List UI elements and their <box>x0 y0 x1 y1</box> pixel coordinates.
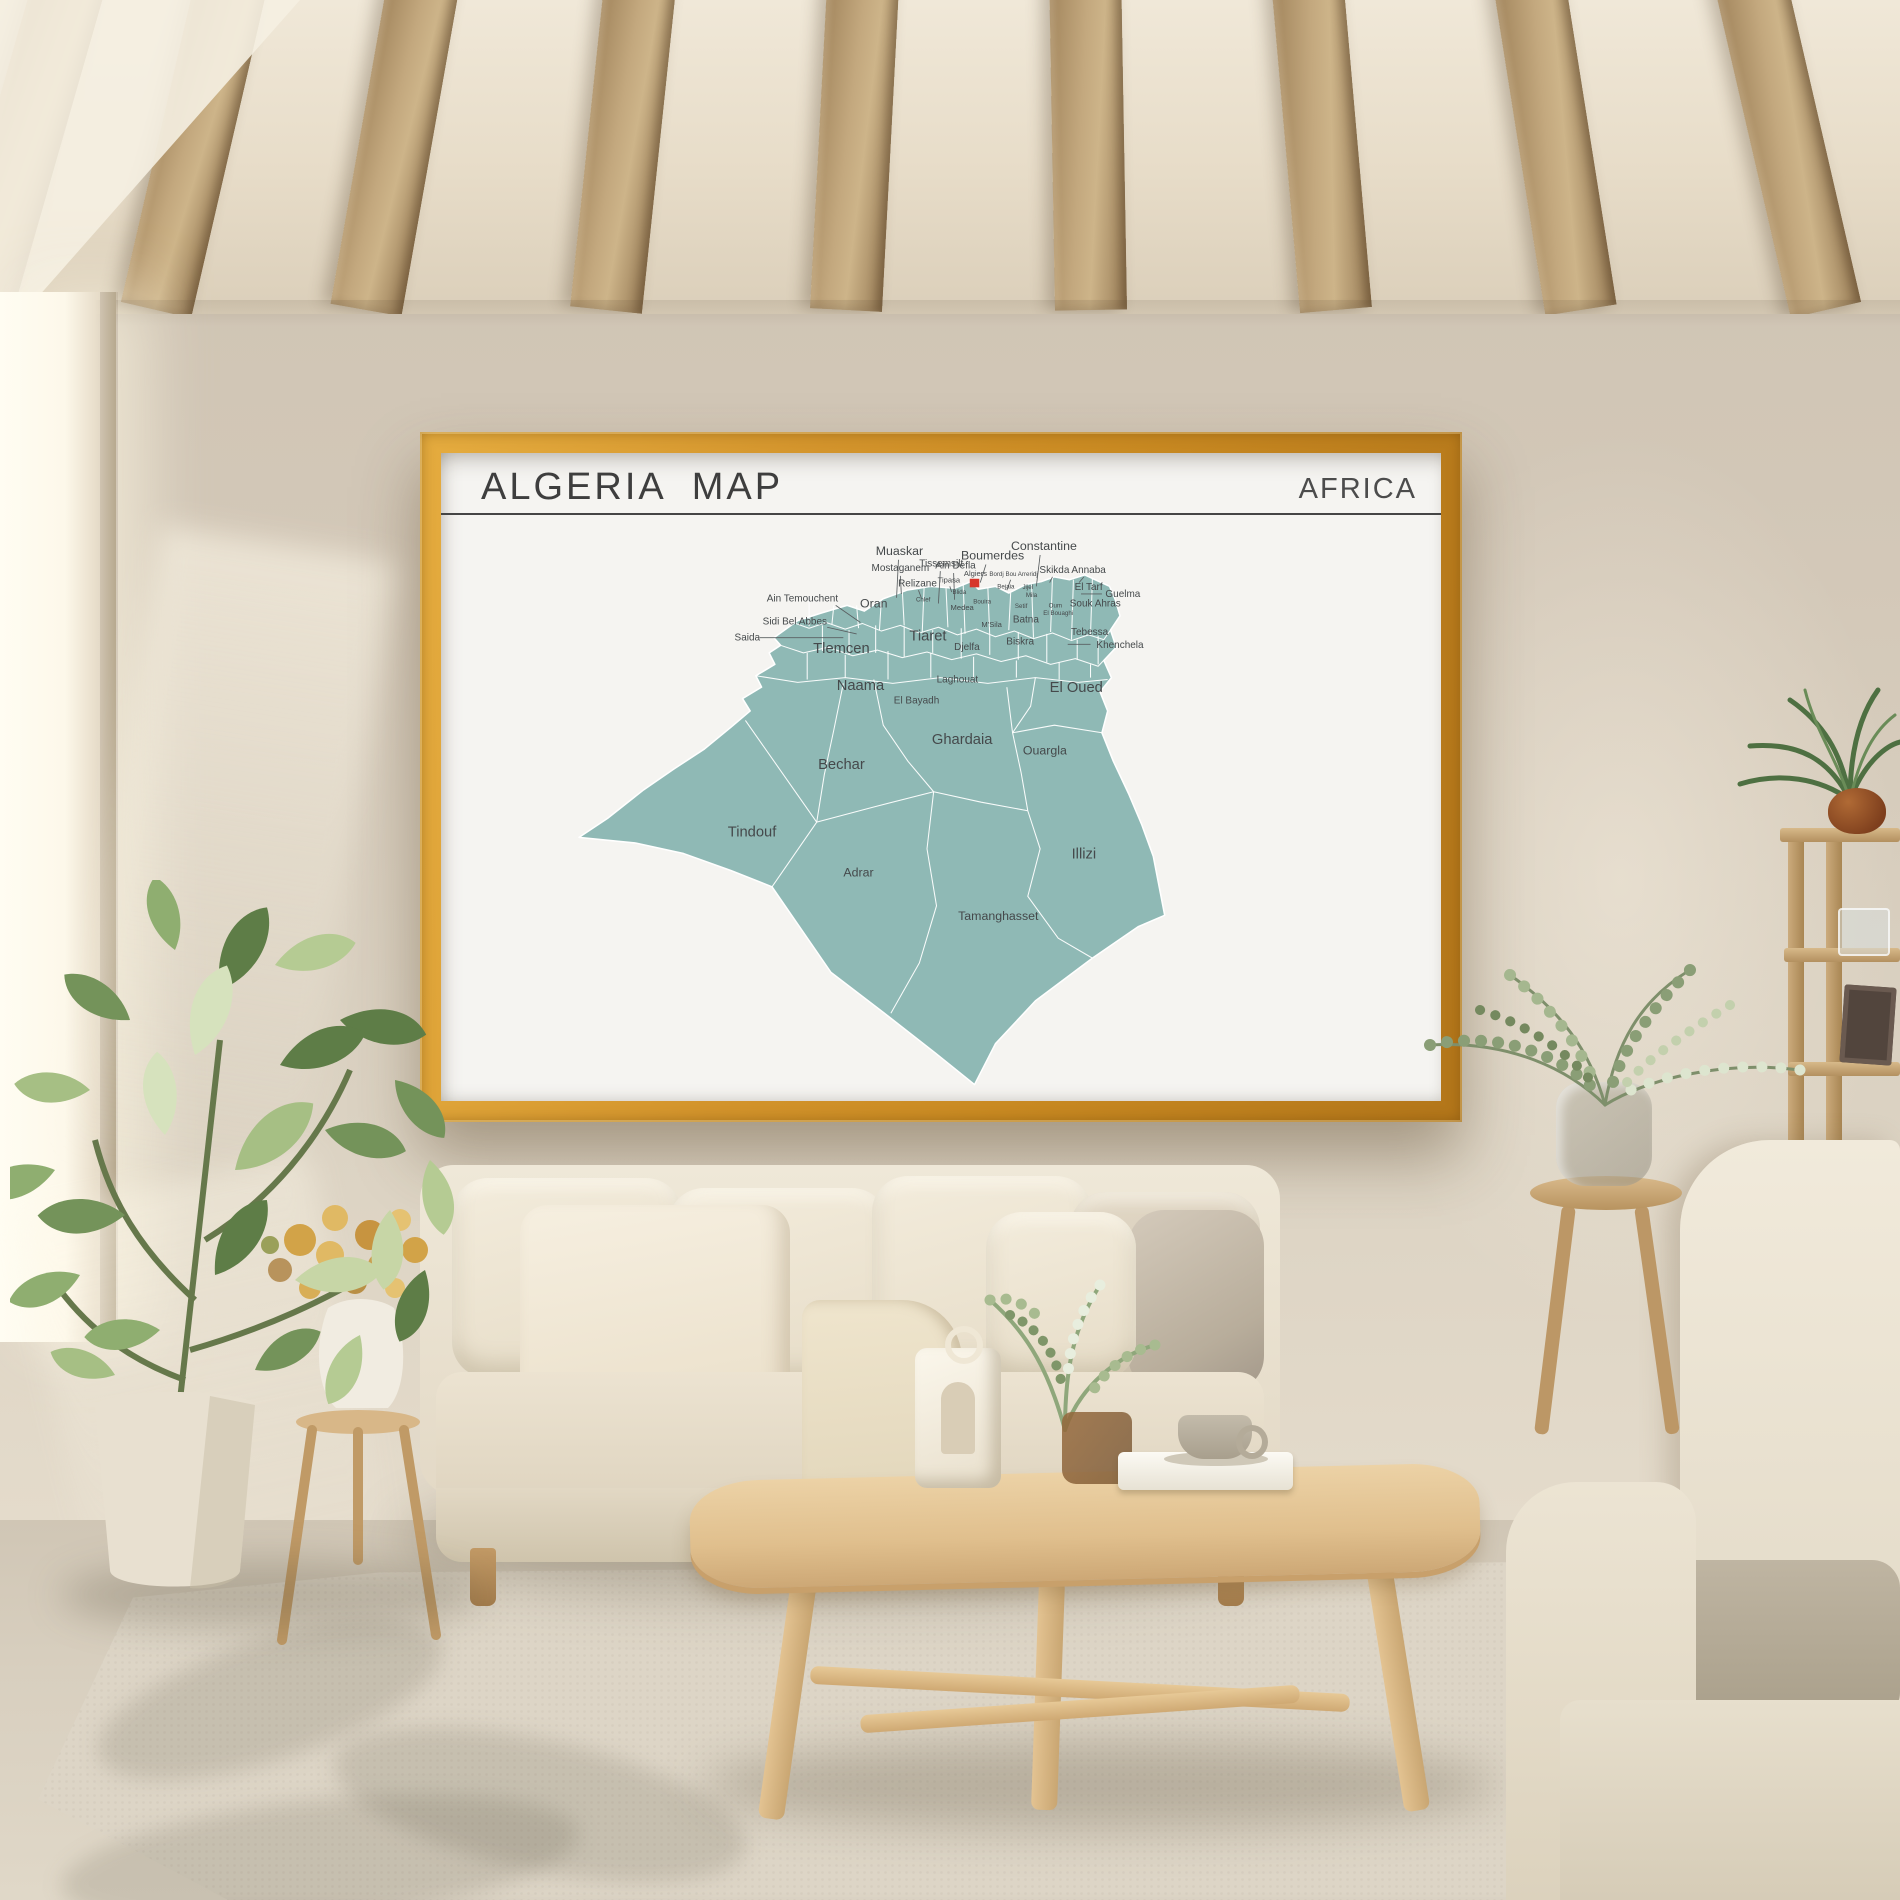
map-label: El Bayadh <box>894 695 939 706</box>
map-label: Adrar <box>843 865 873 879</box>
map-label: El Bouaghi <box>1043 610 1073 617</box>
map-label: Mila <box>1026 592 1038 599</box>
map-label: Biskra <box>1006 636 1034 647</box>
poster-header: ALGERIA MAP AFRICA <box>441 453 1441 515</box>
ceiling-beam <box>1244 0 1372 313</box>
ceiling-beam <box>810 0 915 312</box>
map-label: Bordj Bou Arreridj <box>989 571 1037 578</box>
map-label: Mostaganem <box>872 563 930 574</box>
map-label: Annaba <box>1071 565 1106 576</box>
map-label: Tebessa <box>1071 627 1109 638</box>
map-label: Djelfa <box>954 642 980 653</box>
map-label: Algiers <box>964 569 987 578</box>
ceiling-beam <box>570 0 709 314</box>
map-label: Muaskar <box>876 544 923 558</box>
map-label: Laghouat <box>937 674 979 685</box>
map-label: Jijel <box>1022 584 1033 591</box>
map-label: Souk Ahras <box>1070 598 1121 609</box>
map-label: Chlef <box>916 597 931 604</box>
map-label: Illizi <box>1072 846 1097 862</box>
map-label: Tamanghasset <box>958 909 1039 923</box>
map-label: Ain Temouchent <box>767 594 839 605</box>
ceiling <box>0 0 1900 314</box>
map-label: Oran <box>860 596 888 610</box>
table-plant <box>950 1255 1180 1435</box>
map-label: Bouira <box>973 598 991 605</box>
poster-frame: ALGERIA MAP AFRICA <box>420 432 1462 1122</box>
map-label: M'Sila <box>981 620 1002 629</box>
map-label: Setif <box>1015 603 1028 610</box>
map-label: El Oued <box>1050 680 1103 696</box>
ceiling-beam <box>1647 0 1861 314</box>
map-label: Saida <box>735 633 761 644</box>
algeria-map: MuaskarTissemsiltMostaganemAin DeflaBoum… <box>560 535 1178 1096</box>
poster-title: ALGERIA MAP <box>481 466 783 509</box>
map-label: Tiaret <box>909 629 946 645</box>
plant-pot <box>1828 788 1886 834</box>
ceiling-beam <box>1445 0 1616 314</box>
ceiling-beam <box>1044 0 1127 311</box>
potted-plant <box>10 880 510 1780</box>
armchair-base <box>1560 1700 1900 1900</box>
map-label: Constantine <box>1011 539 1077 553</box>
map-label: Ghardaia <box>932 732 993 748</box>
map-label: Sidi Bel Abbes <box>763 616 827 627</box>
map-label: Blida <box>952 589 966 596</box>
eucalyptus-plant <box>1390 930 1830 1110</box>
map-label: Batna <box>1013 614 1040 625</box>
glass-ornament <box>1838 908 1890 956</box>
cup <box>1178 1415 1252 1459</box>
map-label: Tipasa <box>938 576 961 585</box>
map-label: Bejaia <box>997 583 1015 590</box>
map-label: Ouargla <box>1023 744 1067 758</box>
map-label: Tlemcen <box>813 641 869 657</box>
poster-paper: ALGERIA MAP AFRICA <box>441 453 1441 1101</box>
living-room-scene: ALGERIA MAP AFRICA <box>0 0 1900 1900</box>
table-shadow <box>700 1740 1500 1830</box>
capital-marker <box>970 579 980 588</box>
map-label: Skikda <box>1039 565 1069 576</box>
map-label: Khenchela <box>1096 640 1144 651</box>
map-label: Medea <box>951 603 975 612</box>
ceiling-beam <box>331 0 513 314</box>
map-label: Bechar <box>818 757 865 773</box>
map-label: Tindouf <box>728 824 777 840</box>
plant-leaves <box>10 880 472 1406</box>
palm-plant <box>1710 660 1900 810</box>
poster-continent-label: AFRICA <box>1299 473 1417 506</box>
map-label: Relizane <box>898 578 937 589</box>
map-label: El Tarf <box>1075 582 1103 593</box>
map-label: Naama <box>837 678 885 694</box>
picture-frame <box>1839 984 1896 1065</box>
map-label: Oum <box>1049 602 1062 609</box>
wall-ceiling-shadow <box>0 300 1900 326</box>
